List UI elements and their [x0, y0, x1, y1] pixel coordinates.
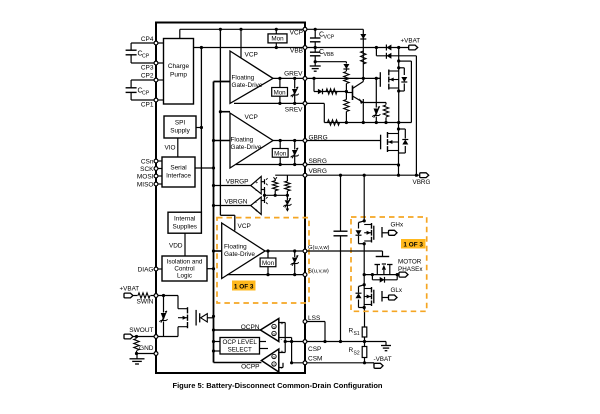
svg-text:SELECT: SELECT — [228, 347, 252, 354]
svg-text:Supplies: Supplies — [172, 224, 197, 231]
svg-text:-VBAT: -VBAT — [374, 356, 392, 363]
svg-text:VBRGP: VBRGP — [226, 178, 249, 185]
svg-text:LSS: LSS — [308, 315, 321, 322]
svg-text:Internal: Internal — [174, 216, 195, 223]
svg-text:SWIN: SWIN — [137, 299, 154, 306]
svg-text:Floating: Floating — [231, 137, 254, 144]
svg-text:CSM: CSM — [308, 355, 322, 362]
svg-text:+: + — [255, 180, 258, 186]
svg-text:GLx: GLx — [391, 287, 403, 294]
svg-text:Isolation and: Isolation and — [167, 259, 203, 266]
svg-text:VCP: VCP — [245, 114, 258, 121]
svg-text:VCP: VCP — [290, 29, 303, 36]
svg-text:Gate-Drive: Gate-Drive — [224, 251, 255, 258]
svg-text:Mon: Mon — [262, 260, 275, 267]
svg-text:-: - — [281, 366, 283, 372]
svg-text:Control: Control — [174, 266, 194, 273]
svg-text:Interface: Interface — [166, 173, 191, 180]
svg-text:CP3: CP3 — [141, 65, 154, 72]
svg-text:+VBAT: +VBAT — [120, 286, 140, 293]
svg-text:Supply: Supply — [170, 128, 190, 135]
svg-text:CP4: CP4 — [141, 36, 154, 43]
svg-text:Gate-Drive: Gate-Drive — [232, 82, 263, 89]
svg-text:Pump: Pump — [170, 72, 187, 79]
svg-text:S(u,v,w): S(u,v,w) — [308, 269, 329, 275]
svg-text:PHASEx: PHASEx — [398, 266, 423, 273]
svg-text:VBRG: VBRG — [413, 179, 431, 186]
svg-text:GND: GND — [139, 345, 154, 352]
svg-text:SPI: SPI — [175, 120, 186, 127]
svg-text:VCP: VCP — [245, 51, 258, 58]
svg-text:Floating: Floating — [232, 75, 255, 82]
svg-text:VBRGN: VBRGN — [224, 198, 247, 205]
svg-text:Mon: Mon — [274, 150, 287, 157]
svg-text:GREV: GREV — [284, 70, 303, 77]
svg-text:CP: CP — [142, 91, 150, 97]
svg-text:1 OF 3: 1 OF 3 — [234, 283, 254, 290]
svg-text:-: - — [255, 188, 257, 194]
svg-text:S2: S2 — [354, 351, 360, 357]
svg-text:CP: CP — [142, 54, 150, 60]
svg-text:S1: S1 — [354, 331, 360, 337]
svg-text:1 OF 3: 1 OF 3 — [403, 242, 423, 249]
svg-text:MOTOR: MOTOR — [398, 259, 422, 266]
svg-text:-: - — [255, 200, 257, 206]
svg-text:VCP: VCP — [238, 223, 251, 230]
svg-text:VCP: VCP — [324, 35, 335, 41]
svg-text:CP2: CP2 — [141, 73, 154, 80]
svg-text:VIO: VIO — [164, 145, 175, 152]
svg-text:MOSI: MOSI — [137, 174, 154, 181]
svg-text:G: G — [273, 363, 276, 367]
svg-text:MISO: MISO — [137, 182, 154, 189]
svg-text:Logic: Logic — [177, 273, 192, 280]
svg-text:VDD: VDD — [169, 243, 183, 250]
svg-text:G: G — [273, 355, 276, 359]
svg-text:+: + — [255, 209, 258, 215]
svg-text:SWOUT: SWOUT — [129, 327, 153, 334]
svg-text:GHx: GHx — [391, 222, 404, 229]
svg-text:G(u,v,w): G(u,v,w) — [308, 245, 330, 251]
svg-text:OCPP: OCPP — [241, 364, 259, 371]
svg-text:Mon: Mon — [271, 36, 284, 43]
svg-text:CP1: CP1 — [141, 102, 154, 109]
svg-text:DIAG: DIAG — [138, 267, 154, 274]
svg-text:Gate-Drive: Gate-Drive — [231, 144, 262, 151]
svg-text:G: G — [273, 325, 276, 329]
svg-text:Charge: Charge — [168, 63, 190, 70]
svg-text:+VBAT: +VBAT — [401, 38, 421, 45]
svg-text:Floating: Floating — [224, 244, 247, 251]
svg-text:VBB: VBB — [324, 52, 335, 58]
svg-text:SCK: SCK — [140, 166, 154, 173]
svg-text:Serial: Serial — [170, 165, 186, 172]
svg-text:CSP: CSP — [308, 346, 321, 353]
svg-text:OCP LEVEL: OCP LEVEL — [223, 339, 258, 346]
svg-text:VBB: VBB — [290, 48, 303, 55]
svg-text:Mon: Mon — [274, 89, 287, 96]
svg-text:Figure 5: Battery-Disconnect C: Figure 5: Battery-Disconnect Common-Drai… — [172, 381, 382, 390]
svg-text:CSn: CSn — [141, 159, 154, 166]
svg-text:SREV: SREV — [285, 106, 303, 113]
svg-text:VBRG: VBRG — [309, 168, 327, 175]
svg-text:G: G — [273, 332, 276, 336]
